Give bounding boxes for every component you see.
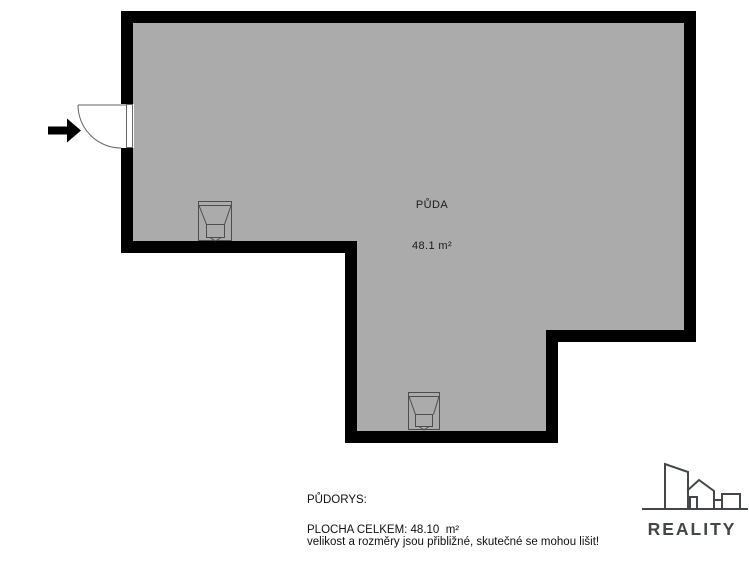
door-frame	[127, 105, 133, 148]
logo-wordmark-line2: PRORADOST	[616, 541, 749, 562]
room-label: PŮDA 48.1 m²	[332, 172, 532, 280]
footer-disclaimer: velikost a rozměry jsou přibližné, skute…	[307, 536, 599, 548]
logo-skyline-icon	[643, 464, 747, 509]
entry-door	[78, 104, 134, 148]
footer-total-area: PLOCHA CELKEM: 48.10 m²	[307, 524, 459, 536]
door-swing-arc	[78, 105, 121, 148]
footer-heading: PŮDORYS:	[307, 494, 367, 506]
floorplan-page: PŮDA 48.1 m² PŮDORYS: PLOCHA CELKEM: 48.…	[0, 0, 749, 562]
floorplan-canvas	[0, 0, 749, 562]
room-area: 48.1 m²	[332, 240, 532, 254]
logo-wordmark-line1: REALITY	[567, 519, 749, 540]
entry-arrow-icon	[48, 119, 81, 143]
room-name: PŮDA	[332, 199, 532, 213]
